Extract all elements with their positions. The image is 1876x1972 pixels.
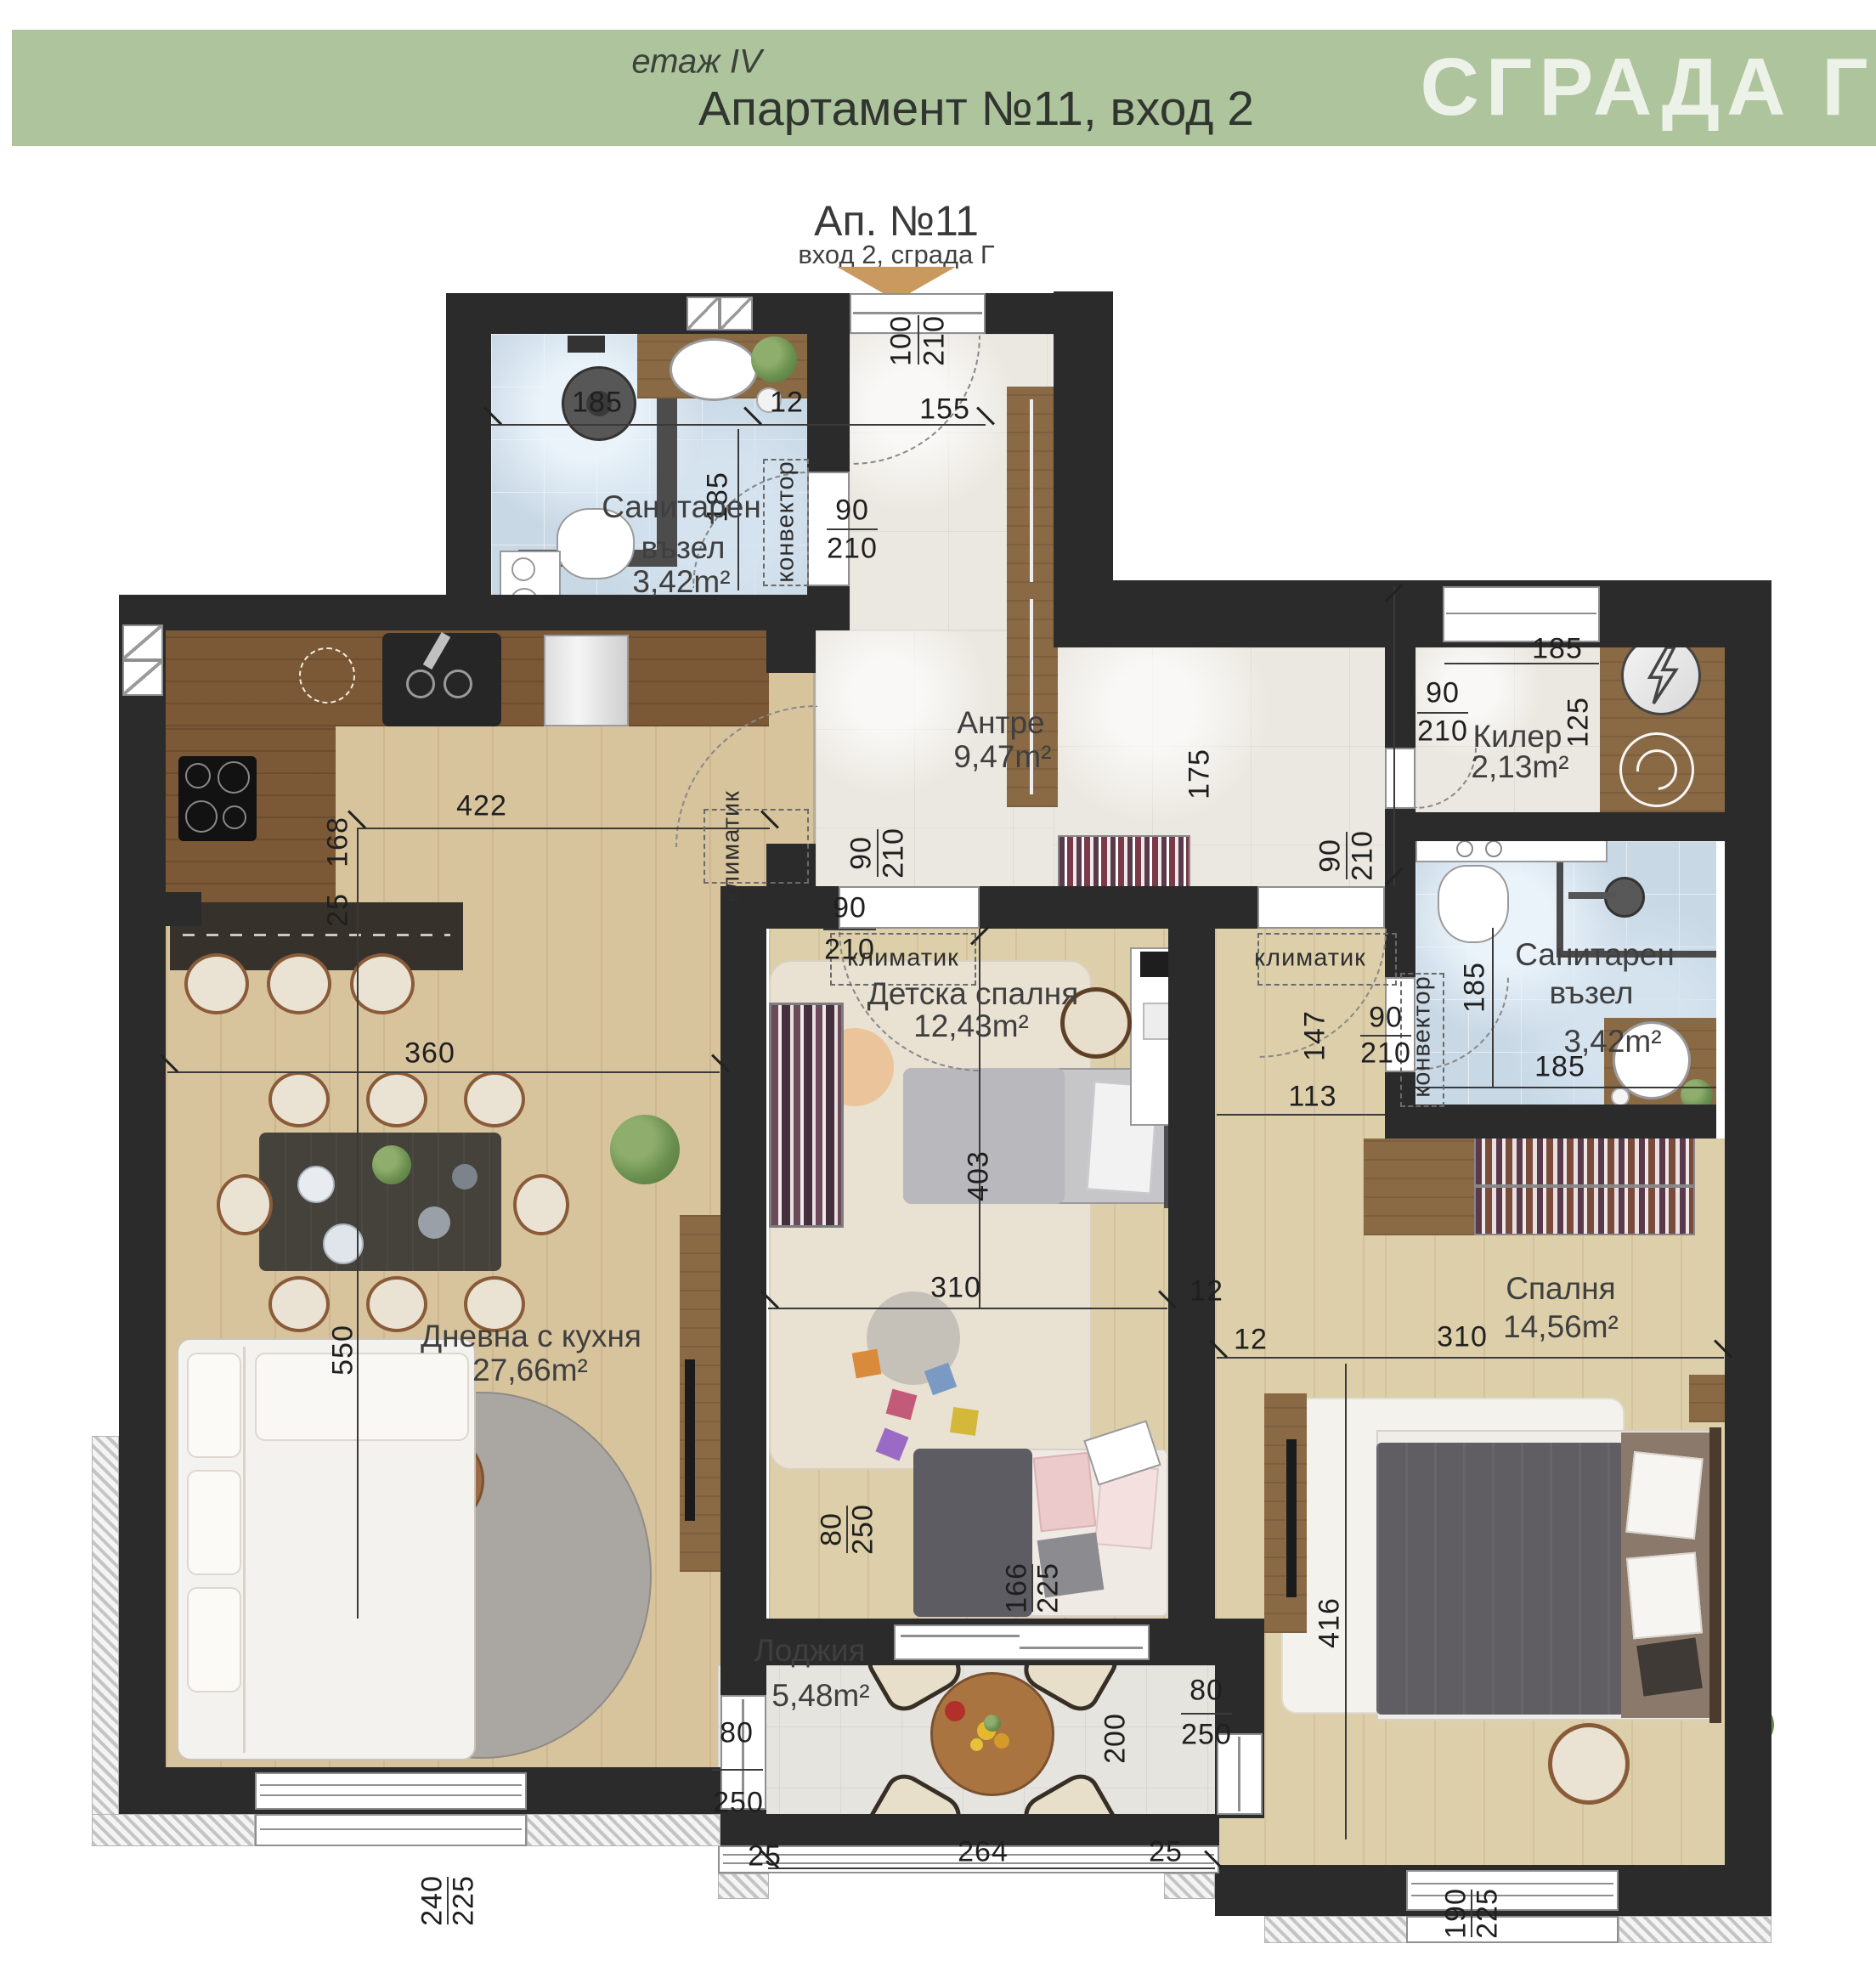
washbasin bbox=[670, 338, 758, 401]
window-line bbox=[1411, 1883, 1613, 1884]
bath1-label: Санитарен bbox=[602, 489, 761, 525]
dim-storage-win: 185 bbox=[1532, 633, 1583, 666]
window bbox=[720, 297, 753, 331]
dim-kids-len: 403 bbox=[963, 1150, 996, 1201]
insulation bbox=[92, 1436, 119, 1845]
dim-divider bbox=[1471, 1890, 1472, 1937]
dim-divider bbox=[827, 528, 878, 530]
tv-icon bbox=[1286, 1439, 1297, 1597]
hob-symbol-icon bbox=[1485, 840, 1502, 857]
dim-log-w: 264 bbox=[958, 1836, 1009, 1869]
bedroom-label: Спалня bbox=[1506, 1271, 1615, 1307]
apartment-label: Ап. №11 bbox=[814, 196, 979, 246]
soap-icon bbox=[1611, 1088, 1630, 1106]
insulation bbox=[1264, 1916, 1409, 1943]
insulation bbox=[92, 1814, 255, 1846]
window-line bbox=[260, 1794, 522, 1796]
bedroom-area: 14,56m² bbox=[1503, 1309, 1619, 1345]
dim-divider bbox=[1346, 832, 1348, 879]
sink-drain-icon bbox=[444, 670, 472, 698]
bath1-label2: възел bbox=[641, 530, 725, 566]
wall bbox=[720, 886, 766, 1814]
dim-entry-top: 155 bbox=[919, 393, 970, 427]
kids-loggia-slider bbox=[894, 1624, 1150, 1660]
bar-stool bbox=[350, 953, 415, 1014]
dim-bed-len: 416 bbox=[1314, 1597, 1347, 1648]
plate-icon bbox=[297, 1166, 335, 1203]
dim-bath2-door-w: 90 bbox=[1369, 1002, 1403, 1035]
storage-door bbox=[1385, 748, 1415, 809]
bedroom-wardrobe-rail bbox=[1474, 1186, 1695, 1235]
flower-icon bbox=[994, 1733, 1009, 1749]
burner-icon bbox=[223, 805, 246, 829]
bath2-area: 3,42m² bbox=[1563, 1024, 1661, 1059]
dim-divider bbox=[1031, 1564, 1033, 1612]
dim-line bbox=[1217, 1357, 1724, 1359]
dim-divider bbox=[823, 929, 876, 930]
window-sill bbox=[1406, 1916, 1619, 1943]
plant bbox=[610, 1115, 680, 1184]
window bbox=[687, 297, 720, 331]
insulation bbox=[1164, 1873, 1215, 1899]
bowl-icon bbox=[418, 1206, 450, 1239]
loggia-area: 5,48m² bbox=[771, 1678, 869, 1714]
ac-label: климатик bbox=[718, 790, 746, 902]
window-line bbox=[260, 1828, 522, 1830]
window-line bbox=[1446, 613, 1596, 614]
entry-area: 9,47m² bbox=[953, 739, 1051, 775]
wall bbox=[446, 293, 491, 630]
wall-stub bbox=[166, 892, 201, 926]
dim-divider bbox=[877, 829, 879, 877]
dim-living-d: 550 bbox=[327, 1325, 360, 1376]
wall bbox=[1385, 1105, 1716, 1139]
dim-bed-win-h: 225 bbox=[1472, 1888, 1505, 1939]
dim-kids-log-h: 250 bbox=[847, 1504, 880, 1555]
toy-block-icon bbox=[852, 1349, 882, 1379]
loggia-label: Лоджия bbox=[754, 1633, 865, 1669]
dim-bath1-w: 185 bbox=[572, 387, 623, 420]
sofa-cushion bbox=[187, 1470, 241, 1575]
insulation bbox=[527, 1814, 720, 1846]
floor-plan-page: етаж IV Апартамент №11, вход 2 СГРАДА Г … bbox=[0, 0, 1876, 1972]
header-bar: етаж IV Апартамент №11, вход 2 СГРАДА Г bbox=[12, 30, 1876, 146]
living-window bbox=[255, 1772, 527, 1810]
toilet bbox=[1438, 865, 1509, 943]
dim-bath2-door-h: 210 bbox=[1360, 1037, 1411, 1071]
ac-label: климатик bbox=[1254, 945, 1366, 973]
toy-block-icon bbox=[950, 1407, 979, 1436]
dim-log-d: 200 bbox=[1099, 1713, 1133, 1764]
kids-label: Детска спалня bbox=[867, 976, 1078, 1012]
dim-kitchen-w: 422 bbox=[456, 790, 507, 823]
dining-chair bbox=[268, 1071, 330, 1127]
dim-living-win-h: 225 bbox=[448, 1875, 481, 1926]
dim-divider bbox=[1181, 1713, 1232, 1715]
dim-bar-d: 25 bbox=[322, 893, 355, 927]
wall bbox=[446, 293, 1113, 334]
hob-symbol-icon bbox=[1456, 840, 1473, 857]
boiler bbox=[1621, 636, 1701, 715]
dim-log-wall-r: 25 bbox=[1149, 1836, 1183, 1869]
dim-line bbox=[1217, 1114, 1385, 1116]
dim-bed-wall: 12 bbox=[1234, 1324, 1268, 1357]
dining-chair bbox=[217, 1174, 273, 1235]
wall bbox=[1054, 291, 1113, 580]
insulation bbox=[1619, 1916, 1771, 1943]
pillow-icon bbox=[1033, 1452, 1097, 1532]
bar-stool bbox=[184, 953, 249, 1014]
dim-bed-w: 310 bbox=[1437, 1321, 1488, 1354]
dim-kids-w: 310 bbox=[930, 1272, 981, 1305]
door-line bbox=[1238, 1737, 1240, 1811]
dim-kids-door-h: 210 bbox=[878, 828, 911, 879]
dim-kids-win-h: 225 bbox=[1032, 1562, 1065, 1613]
slider-rail bbox=[1020, 1647, 1143, 1649]
shower-fixture-icon bbox=[568, 336, 605, 353]
dim-log-left-h: 250 bbox=[713, 1787, 764, 1820]
burner-icon bbox=[185, 763, 211, 788]
apartment-sublabel: вход 2, сграда Г bbox=[798, 240, 994, 270]
window-sill bbox=[255, 1814, 527, 1846]
dim-kids-win-w: 166 bbox=[1001, 1562, 1034, 1613]
slider-rail bbox=[901, 1635, 1020, 1637]
dim-entry-door-w: 100 bbox=[885, 315, 918, 366]
bedroom-window bbox=[1406, 1870, 1619, 1911]
dim-bath1-door-h: 210 bbox=[827, 533, 878, 566]
kids-wardrobe bbox=[769, 1003, 844, 1228]
living-area: 27,66m² bbox=[472, 1353, 588, 1388]
sofa-back-cushion bbox=[255, 1353, 469, 1441]
dim-line bbox=[1415, 1087, 1716, 1088]
dim-bed-door-w: 90 bbox=[1314, 839, 1348, 873]
dim-divider bbox=[447, 1877, 449, 1924]
dim-line bbox=[1492, 928, 1494, 1088]
dim-living-win-w: 240 bbox=[416, 1875, 449, 1926]
dim-line bbox=[1393, 586, 1395, 885]
dim-log-right-h: 250 bbox=[1181, 1719, 1232, 1752]
dining-chair bbox=[464, 1071, 525, 1127]
bedroom-door bbox=[1257, 886, 1385, 929]
window bbox=[122, 624, 163, 660]
kids-area: 12,43m² bbox=[913, 1009, 1029, 1044]
bath1-area: 3,42m² bbox=[632, 564, 730, 600]
dim-divider bbox=[846, 1506, 848, 1553]
sofa-seam bbox=[243, 1347, 246, 1753]
pillow-icon bbox=[1625, 1451, 1704, 1540]
flower-leaf-icon bbox=[984, 1715, 1001, 1732]
dim-kitchen-d: 168 bbox=[322, 816, 355, 867]
flower-icon bbox=[970, 1738, 983, 1751]
convector-label: конвектор bbox=[1409, 975, 1437, 1098]
dim-hall-w: 113 bbox=[1288, 1081, 1336, 1114]
door-line bbox=[853, 312, 982, 314]
insulation bbox=[718, 1873, 769, 1899]
dim-log-left-w: 80 bbox=[720, 1717, 754, 1750]
dim-kids-log-w: 80 bbox=[816, 1512, 849, 1546]
entry-label: Антре bbox=[957, 705, 1044, 741]
fridge bbox=[544, 635, 629, 726]
wall bbox=[1168, 886, 1215, 1619]
bedroom-tv-panel bbox=[1264, 1393, 1307, 1633]
bed-blanket bbox=[1376, 1443, 1625, 1715]
sink-drain-icon bbox=[406, 670, 435, 698]
dining-chair bbox=[366, 1071, 427, 1127]
bed-headboard bbox=[1709, 1427, 1721, 1723]
dim-divider bbox=[918, 315, 919, 364]
dim-storage-door-h: 210 bbox=[1417, 715, 1468, 749]
hood-symbol-icon bbox=[299, 647, 355, 703]
bath2-label: Санитарен bbox=[1515, 937, 1675, 973]
shower-arm-icon bbox=[1568, 892, 1616, 899]
wall bbox=[1385, 812, 1725, 841]
washer-door-icon bbox=[511, 557, 535, 581]
dim-kids-wall: 12 bbox=[1189, 1275, 1223, 1308]
burner-icon bbox=[185, 800, 218, 833]
floor-threshold bbox=[813, 673, 816, 844]
bedroom-wardrobe-rail bbox=[1474, 1137, 1695, 1186]
building-label: СГРАДА Г bbox=[1420, 41, 1874, 134]
dim-entry-len: 175 bbox=[1184, 749, 1217, 800]
wall-stub bbox=[766, 630, 816, 673]
ac-label: климатик bbox=[847, 945, 959, 973]
dim-storage-door-w: 90 bbox=[1426, 677, 1460, 710]
dim-divider bbox=[1417, 712, 1468, 714]
dim-divider bbox=[712, 1769, 763, 1771]
dim-living-w: 360 bbox=[404, 1037, 455, 1071]
dim-bed-win-w: 190 bbox=[1440, 1888, 1473, 1939]
dining-chair bbox=[268, 1276, 330, 1332]
bar-dashed-line bbox=[183, 934, 450, 936]
dim-line bbox=[491, 424, 986, 426]
plant bbox=[751, 336, 797, 382]
wall bbox=[119, 595, 166, 1814]
living-label: Дневна с кухня bbox=[421, 1319, 641, 1354]
page-title: Апартамент №11, вход 2 bbox=[698, 81, 1254, 137]
dim-line bbox=[768, 1308, 1167, 1309]
sofa-cushion bbox=[187, 1587, 241, 1692]
dining-chair bbox=[513, 1174, 569, 1235]
cup-icon bbox=[945, 1701, 965, 1721]
bar-stool bbox=[267, 953, 331, 1014]
dim-bath1-door-w: 90 bbox=[835, 494, 869, 528]
bowl-icon bbox=[452, 1164, 477, 1189]
nightstand bbox=[1689, 1375, 1725, 1422]
floor-label: етаж IV bbox=[631, 43, 761, 82]
dim-divider bbox=[1360, 1035, 1411, 1037]
wardrobe-handle-icon bbox=[1030, 399, 1033, 582]
pillow-icon bbox=[1626, 1552, 1703, 1640]
pillow-icon bbox=[1636, 1637, 1703, 1696]
dim-line bbox=[167, 1071, 720, 1073]
window bbox=[122, 660, 163, 696]
tv-icon bbox=[685, 1359, 695, 1521]
wall bbox=[1725, 580, 1771, 1916]
convector-label: конвектор bbox=[772, 461, 800, 583]
dim-storage-d: 125 bbox=[1562, 697, 1596, 748]
dim-bath2-h: 185 bbox=[1459, 962, 1492, 1013]
dim-log-wall-l: 25 bbox=[748, 1840, 782, 1873]
bath2-label2: възел bbox=[1549, 975, 1633, 1011]
burner-icon bbox=[218, 761, 250, 794]
dim-bath1-gap: 12 bbox=[770, 387, 804, 420]
window-line bbox=[260, 1784, 522, 1786]
bedroom-wardrobe-wood bbox=[1364, 1139, 1474, 1235]
sofa-cushion bbox=[187, 1353, 241, 1458]
dining-chair bbox=[366, 1276, 427, 1332]
wall bbox=[1054, 580, 1771, 647]
dim-pass-w: 90 bbox=[833, 892, 867, 925]
dim-line bbox=[357, 828, 359, 1619]
dim-log-right-w: 80 bbox=[1189, 1675, 1223, 1708]
dim-hall-d: 147 bbox=[1299, 1010, 1332, 1061]
storage-area: 2,13m² bbox=[1471, 749, 1568, 785]
dim-kids-door-w: 90 bbox=[845, 836, 879, 870]
table-plant-icon bbox=[372, 1145, 411, 1184]
dim-entry-door-h: 210 bbox=[918, 315, 952, 366]
dim-bed-door-h: 210 bbox=[1347, 830, 1380, 881]
